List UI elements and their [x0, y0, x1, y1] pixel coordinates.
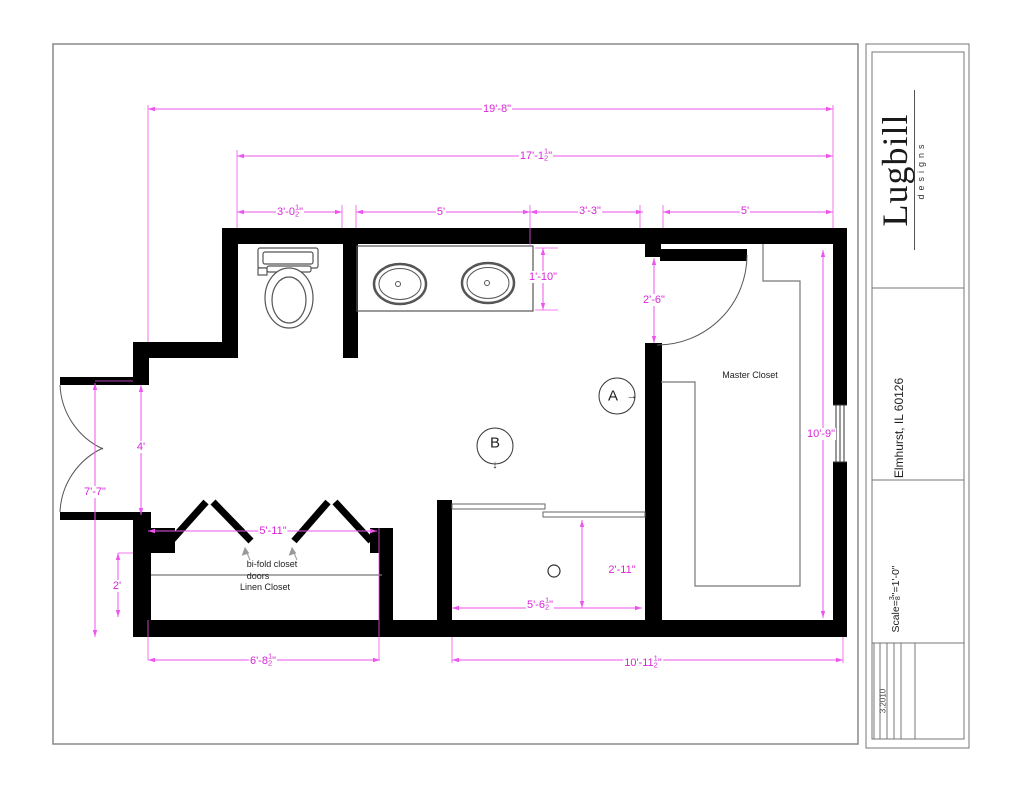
dim-shower-width: 5'-612"	[526, 599, 554, 612]
vanity-counter	[357, 246, 533, 311]
sink-right	[462, 263, 514, 303]
detail-marker-b-label: B	[490, 435, 500, 452]
wall-left-upper-stub	[133, 342, 149, 385]
bifold-label-line1: bi-fold closet	[247, 559, 298, 569]
toilet	[258, 248, 318, 328]
master-closet-label: Master Closet	[722, 370, 778, 380]
drawing-sheet: 19'-8" 17'-112" 3'-012" 5' 3'-3" 5' 1'-1…	[0, 0, 1024, 791]
dim-bottom-width: 10'-1112"	[623, 657, 663, 670]
closet-door-leaf	[660, 249, 747, 261]
wall-right-upper	[833, 228, 847, 405]
dim-bifold-width: 5'-11"	[258, 525, 287, 537]
dim-vanity-depth: 1'-10"	[528, 271, 558, 283]
wall-shower-left	[437, 500, 452, 620]
dim-shower-depth: 2'-11"	[607, 564, 636, 576]
dim-upper-width: 17'-112"	[519, 150, 553, 163]
toilet-flush-lever	[258, 268, 267, 275]
wall-left-lower	[133, 512, 151, 620]
dim-left-lower: 2'	[112, 580, 122, 592]
toilet-tank-inner	[263, 252, 313, 264]
dim-closet-width: 5'	[740, 205, 750, 217]
wall-top	[222, 228, 847, 244]
revision-date: 3.2010	[879, 689, 888, 713]
entry-door-leaf-bottom	[60, 512, 133, 520]
brand-name: Lugbill	[876, 90, 915, 250]
dim-left-height: 7'-7"	[83, 486, 107, 498]
walls	[60, 228, 847, 637]
floor-plan-canvas	[0, 0, 1024, 791]
detail-marker-a-label: A	[608, 388, 618, 405]
dim-mid-segment: 3'-3"	[578, 205, 602, 217]
wall-right-lower	[833, 462, 847, 637]
wall-closet-partition	[645, 343, 662, 620]
shower-sliding-door-panel-1	[452, 504, 545, 509]
sink-left-drain	[396, 282, 401, 287]
linen-closet-label: Linen Closet	[240, 582, 290, 592]
entry-door-arc-top	[60, 385, 103, 449]
dim-vanity-width: 5'	[436, 206, 446, 218]
sheet-border	[53, 44, 858, 744]
wall-closet-stub	[645, 228, 661, 257]
shower-sliding-door-panel-2	[543, 512, 645, 517]
closet-door-arc	[657, 255, 747, 345]
brand-subtitle: designs	[916, 90, 926, 250]
wall-bottom	[133, 620, 847, 637]
detail-marker-b-arrow-icon: ↓	[492, 459, 498, 471]
wall-wc-vanity-divider	[343, 228, 358, 358]
wall-wc-left	[222, 228, 238, 345]
dim-entry-opening: 4'	[136, 441, 146, 453]
dim-toilet-width: 3'-012"	[276, 206, 304, 219]
shower-drain	[548, 565, 560, 577]
bifold-label-line2: doors	[247, 571, 270, 581]
dim-linen-width: 6'-812"	[249, 655, 277, 668]
entry-door-arc-bottom	[60, 448, 103, 512]
drawing-scale: Scale= 38"=1'-0"	[890, 565, 902, 632]
master-closet-shelf	[661, 244, 800, 586]
detail-marker-a-arrow-icon: →	[627, 390, 638, 402]
toilet-bowl-inner	[272, 277, 306, 323]
brand-logo: Lugbill designs	[876, 90, 926, 250]
dim-overall-width: 19'-8"	[482, 103, 512, 115]
sink-right-drain	[485, 281, 490, 286]
sink-right-basin	[467, 268, 509, 299]
wall-step	[147, 342, 238, 358]
dimension-lines	[93, 105, 843, 663]
dim-closet-door: 2'-6"	[642, 294, 666, 306]
dim-closet-height: 10'-9"	[806, 428, 836, 440]
wall-alcove-left	[379, 553, 393, 620]
vanity	[357, 246, 533, 311]
project-address: Elmhurst, IL 60126	[892, 378, 906, 478]
